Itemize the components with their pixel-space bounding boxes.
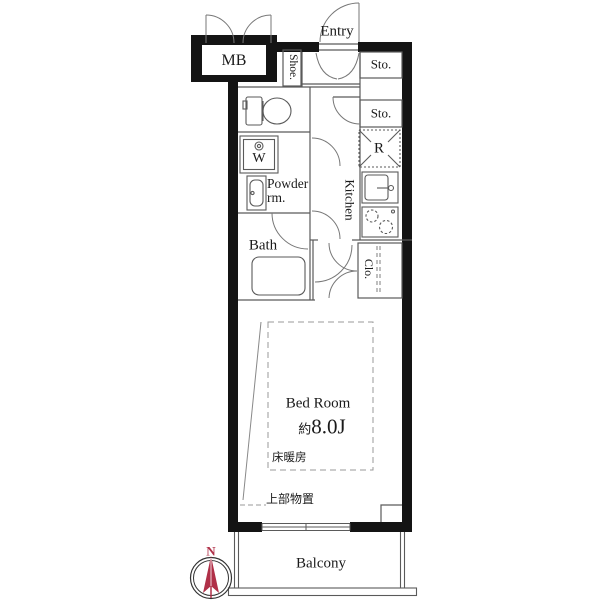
compass bbox=[191, 556, 232, 599]
bottom-wall-right bbox=[350, 522, 412, 532]
label-mb: MB bbox=[222, 53, 247, 69]
label-balcony: Balcony bbox=[296, 557, 346, 572]
label-storage-top: Sto. bbox=[371, 58, 392, 71]
sloped-line bbox=[243, 322, 261, 500]
label-closet: Clo. bbox=[359, 263, 379, 275]
label-bath: Bath bbox=[249, 239, 277, 254]
closet-door-arc-top bbox=[329, 243, 357, 271]
label-shoe: Shoe. bbox=[279, 61, 305, 73]
corner-pillar bbox=[381, 505, 402, 522]
floorplan-drawing bbox=[0, 0, 600, 600]
powder-door-arc bbox=[312, 211, 340, 239]
label-bedroom-size: 約8.0J bbox=[298, 417, 345, 438]
entry-hall-doors bbox=[316, 53, 359, 79]
closet-door-arc-bottom bbox=[329, 271, 357, 298]
label-storage-mid: Sto. bbox=[371, 107, 392, 120]
label-compass-north: N bbox=[206, 545, 215, 558]
label-refrigerator: R bbox=[374, 142, 384, 157]
label-entry: Entry bbox=[320, 25, 353, 40]
toilet-door-arc bbox=[312, 138, 340, 166]
bedroom-annotations bbox=[240, 322, 373, 505]
label-kitchen: Kitchen bbox=[329, 194, 370, 207]
label-bedroom: Bed Room bbox=[286, 397, 351, 412]
label-floor-heating: 床暖房 bbox=[272, 453, 307, 465]
powder-basin bbox=[247, 176, 266, 210]
stove bbox=[362, 207, 398, 237]
bathtub bbox=[252, 257, 305, 295]
storage-mid-door-arc bbox=[333, 97, 360, 124]
label-washer: W bbox=[252, 152, 265, 166]
label-powder-room: Powder rm. bbox=[267, 177, 308, 205]
label-upper-storage: 上部物置 bbox=[266, 493, 314, 505]
right-wall bbox=[402, 42, 412, 532]
toilet bbox=[243, 97, 291, 125]
bedroom-door-arc bbox=[315, 245, 352, 282]
bottom-wall-left bbox=[228, 522, 262, 532]
floorplan-page: MB Entry Shoe. Sto. Sto. R Kitchen W Pow… bbox=[0, 0, 600, 600]
bath-door-arc bbox=[272, 213, 308, 249]
left-wall bbox=[228, 82, 238, 532]
bedroom-window bbox=[262, 524, 350, 531]
